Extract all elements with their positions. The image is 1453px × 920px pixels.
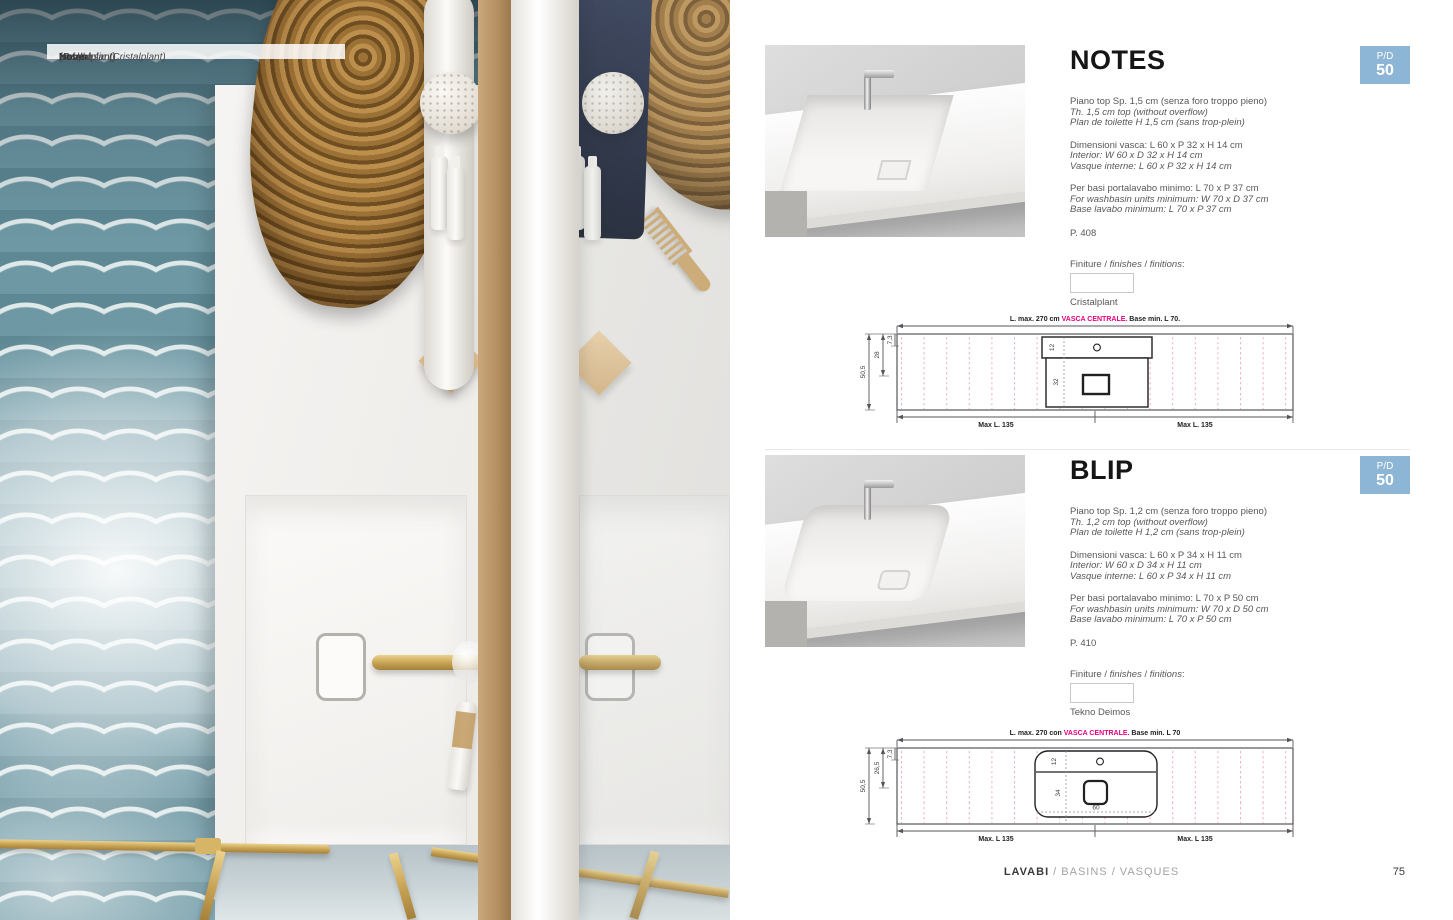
faucet-spout [864, 480, 894, 488]
technical-drawing-blip: L. max. 270 con VASCA CENTRALE. Base min… [845, 726, 1325, 844]
spec-top: Piano top Sp. 1,2 cm (senza foro troppo … [1070, 507, 1410, 539]
dim-basin-width: 60 [1092, 805, 1100, 812]
spray-bottle [447, 166, 464, 240]
cabinet-edge [765, 191, 807, 237]
product-title: BLIP [1070, 455, 1410, 486]
product-title: NOTES [1070, 45, 1410, 76]
dim-max-right: Max L. 135 [1177, 422, 1213, 429]
technical-drawing-notes: L. max. 270 cm VASCA CENTRALE. Base min.… [845, 312, 1325, 430]
spec-dimensions: Dimensioni vasca: L 60 x P 32 x H 14 cm … [1070, 141, 1410, 173]
overflow-slot [316, 633, 366, 701]
finishes-label: Finiture / finishes / finitions: [1070, 259, 1410, 270]
dim-basin-depth: 34 [1055, 789, 1062, 797]
pd-badge: P/D 50 [1360, 456, 1410, 494]
product-photo-notes [765, 45, 1025, 237]
badge-label: P/D [1360, 51, 1410, 62]
dim-max-right: Max. L 135 [1177, 836, 1212, 843]
finish-name: Tekno Deimos [1070, 707, 1410, 718]
decor-sphere [420, 72, 482, 134]
spec-base: Per basi portalavabo minimo: L 70 x P 37… [1070, 184, 1410, 216]
spray-bottle [431, 156, 448, 230]
section-divider [765, 449, 1410, 450]
page-reference: P. 410 [1070, 638, 1410, 649]
pd-badge: P/D 50 [1360, 46, 1410, 84]
hero-photo: Lavabo Notes (Cristalplant) Notes washba… [0, 0, 730, 920]
drain [877, 160, 912, 180]
product-section-blip: P/D 50 BLIP Piano top Sp. 1,2 cm (senza … [1070, 455, 1410, 718]
product-photo-blip [765, 455, 1025, 647]
footer-category: LAVABI [1004, 866, 1049, 878]
dim-height-mid: 28 [874, 351, 881, 359]
dim-height-top: 7,3 [887, 335, 894, 344]
dim-basin-strip: 12 [1051, 758, 1058, 766]
finishes-label: Finiture / finishes / finitions: [1070, 669, 1410, 680]
dim-max-left: Max L. 135 [978, 422, 1014, 429]
mirror-pillar [511, 0, 579, 920]
cabinet-edge [765, 601, 807, 647]
mirror-tint [579, 0, 730, 920]
faucet-spout [864, 70, 894, 78]
wood-mirror-frame [478, 0, 511, 920]
drawing-top-label: L. max. 270 cm VASCA CENTRALE. Base min.… [1010, 316, 1180, 323]
finish-swatch [1070, 683, 1134, 703]
spec-top: Piano top Sp. 1,5 cm (senza foro troppo … [1070, 97, 1410, 129]
content-column: P/D 50 NOTES Piano top Sp. 1,5 cm (senza… [730, 0, 1453, 920]
badge-number: 50 [1360, 472, 1410, 490]
dim-height-mid: 26,5 [874, 761, 881, 774]
footer-translations: / BASINS / VASQUES [1049, 866, 1179, 878]
dim-max-left: Max. L 135 [978, 836, 1013, 843]
dim-basin-strip: 12 [1049, 344, 1056, 352]
dim-basin-depth: 32 [1053, 378, 1060, 386]
product-section-notes: P/D 50 NOTES Piano top Sp. 1,5 cm (senza… [1070, 45, 1410, 308]
page-reference: P. 408 [1070, 228, 1410, 239]
spec-base: Per basi portalavabo minimo: L 70 x P 50… [1070, 594, 1410, 626]
dim-height-total: 50,5 [860, 365, 867, 378]
drain [877, 570, 912, 590]
finish-swatch [1070, 273, 1134, 293]
spec-dimensions: Dimensioni vasca: L 60 x P 34 x H 11 cm … [1070, 551, 1410, 583]
page-footer: LAVABI / BASINS / VASQUES [730, 866, 1453, 878]
photo-caption: Lavabo Notes (Cristalplant) Notes washba… [47, 44, 345, 59]
page-number: 75 [1393, 866, 1405, 878]
badge-number: 50 [1360, 62, 1410, 80]
dim-height-total: 50,5 [860, 779, 867, 792]
catalog-page: Lavabo Notes (Cristalplant) Notes washba… [0, 0, 1453, 920]
drawing-top-label: L. max. 270 con VASCA CENTRALE. Base min… [1010, 730, 1181, 737]
badge-label: P/D [1360, 461, 1410, 472]
finish-name: Cristalplant [1070, 297, 1410, 308]
dim-height-top: 7,3 [887, 749, 894, 758]
